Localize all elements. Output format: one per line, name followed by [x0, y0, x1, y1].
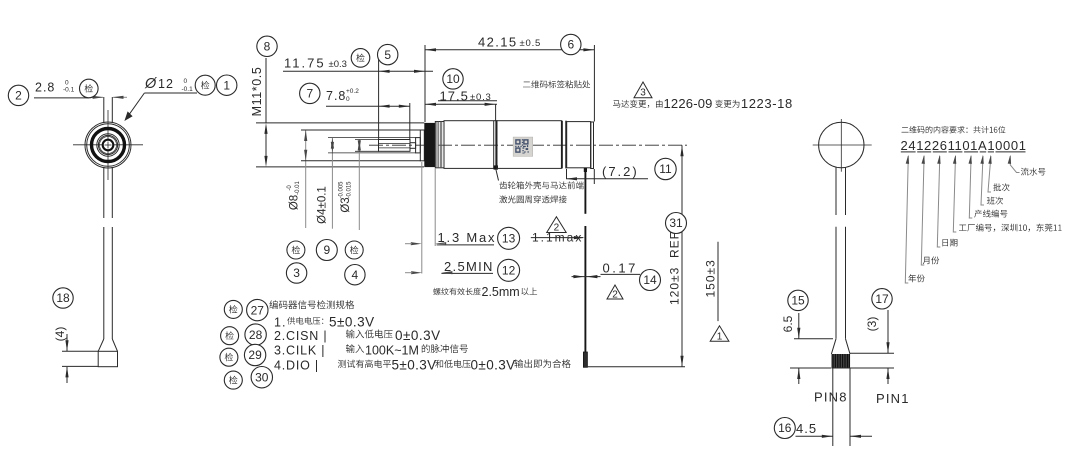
svg-text:-0.1: -0.1 [63, 87, 75, 94]
svg-text:7.8: 7.8 [326, 89, 346, 103]
svg-text:2412261101A10001: 2412261101A10001 [901, 138, 1027, 153]
svg-text:M11*0.5: M11*0.5 [250, 67, 264, 117]
svg-text:3: 3 [293, 266, 300, 280]
svg-text:Ø3: Ø3 [340, 197, 352, 212]
svg-text:0: 0 [65, 80, 69, 87]
svg-text:3.CILK |: 3.CILK | [274, 344, 325, 358]
svg-text:5±0.3V: 5±0.3V [329, 314, 375, 329]
svg-text:8: 8 [264, 40, 271, 54]
svg-text:150±3: 150±3 [704, 259, 718, 297]
svg-text:2: 2 [15, 89, 22, 103]
svg-text:2.5mm: 2.5mm [482, 285, 520, 299]
svg-text:11.75: 11.75 [284, 56, 326, 71]
svg-text:-0.01: -0.01 [295, 181, 301, 195]
svg-text:100K~1M: 100K~1M [365, 344, 419, 358]
svg-text:4.5: 4.5 [796, 421, 817, 436]
svg-text:-0.005: -0.005 [339, 181, 345, 199]
svg-text:1: 1 [717, 331, 723, 342]
svg-text:1226-09: 1226-09 [664, 96, 713, 111]
svg-text:4: 4 [352, 268, 359, 282]
svg-text:27: 27 [251, 303, 265, 317]
svg-text:Ø4±0.1: Ø4±0.1 [317, 186, 329, 224]
svg-text:6.5: 6.5 [781, 315, 795, 332]
svg-text:7: 7 [306, 87, 313, 101]
svg-text:0.17: 0.17 [603, 260, 638, 275]
svg-text:5: 5 [384, 48, 391, 62]
svg-text:REF: REF [668, 231, 682, 258]
svg-text:(3): (3) [865, 317, 879, 332]
svg-text:0±0.3V: 0±0.3V [471, 358, 516, 373]
svg-text:±0.3: ±0.3 [329, 59, 347, 70]
svg-text:1: 1 [223, 78, 230, 92]
svg-text:29: 29 [248, 348, 262, 362]
svg-text:(7.2): (7.2) [602, 164, 639, 179]
svg-text:12: 12 [158, 77, 174, 91]
svg-text:0: 0 [346, 96, 350, 103]
svg-text:1.1max: 1.1max [532, 230, 583, 244]
svg-text:13: 13 [502, 232, 516, 246]
svg-text:+0.2: +0.2 [346, 88, 359, 95]
svg-text:3: 3 [640, 88, 646, 99]
svg-text:0±0.3V: 0±0.3V [395, 328, 441, 343]
svg-text:30: 30 [255, 370, 269, 384]
svg-text:14: 14 [643, 273, 657, 287]
svg-text:31: 31 [669, 216, 683, 230]
svg-text:2.8: 2.8 [35, 81, 55, 95]
svg-text:±0.3: ±0.3 [470, 92, 492, 103]
svg-text:6: 6 [567, 38, 574, 52]
svg-text:PIN1: PIN1 [876, 391, 910, 406]
svg-text:28: 28 [249, 328, 263, 342]
svg-text:±0.5: ±0.5 [520, 38, 542, 49]
svg-text:4.DIO |: 4.DIO | [274, 359, 319, 373]
svg-text:17: 17 [875, 292, 889, 306]
svg-text:9: 9 [323, 243, 330, 257]
svg-text:5±0.3V: 5±0.3V [392, 358, 437, 373]
svg-text:12: 12 [502, 264, 516, 278]
svg-text:-0.1: -0.1 [182, 86, 194, 93]
svg-text:Ø: Ø [144, 76, 157, 92]
svg-text:42.15: 42.15 [478, 35, 518, 50]
svg-text:120±3: 120±3 [668, 267, 682, 305]
svg-text:18: 18 [56, 291, 70, 305]
svg-text:11: 11 [659, 162, 672, 176]
svg-text:16: 16 [778, 421, 792, 435]
svg-text:(4): (4) [53, 327, 67, 342]
svg-text:10: 10 [446, 72, 460, 86]
svg-text:0: 0 [184, 78, 188, 85]
svg-text:1.3 Max: 1.3 Max [438, 230, 497, 245]
svg-text:PIN8: PIN8 [814, 390, 848, 405]
svg-text:-0.015: -0.015 [347, 181, 353, 199]
svg-text:1223-18: 1223-18 [741, 96, 793, 111]
svg-text:2: 2 [612, 290, 618, 301]
svg-text:-0: -0 [287, 185, 293, 191]
svg-text:1.: 1. [274, 315, 286, 329]
svg-text:15: 15 [791, 294, 805, 308]
svg-text:Ø8: Ø8 [289, 195, 301, 210]
svg-text:2.CISN |: 2.CISN | [274, 329, 327, 343]
